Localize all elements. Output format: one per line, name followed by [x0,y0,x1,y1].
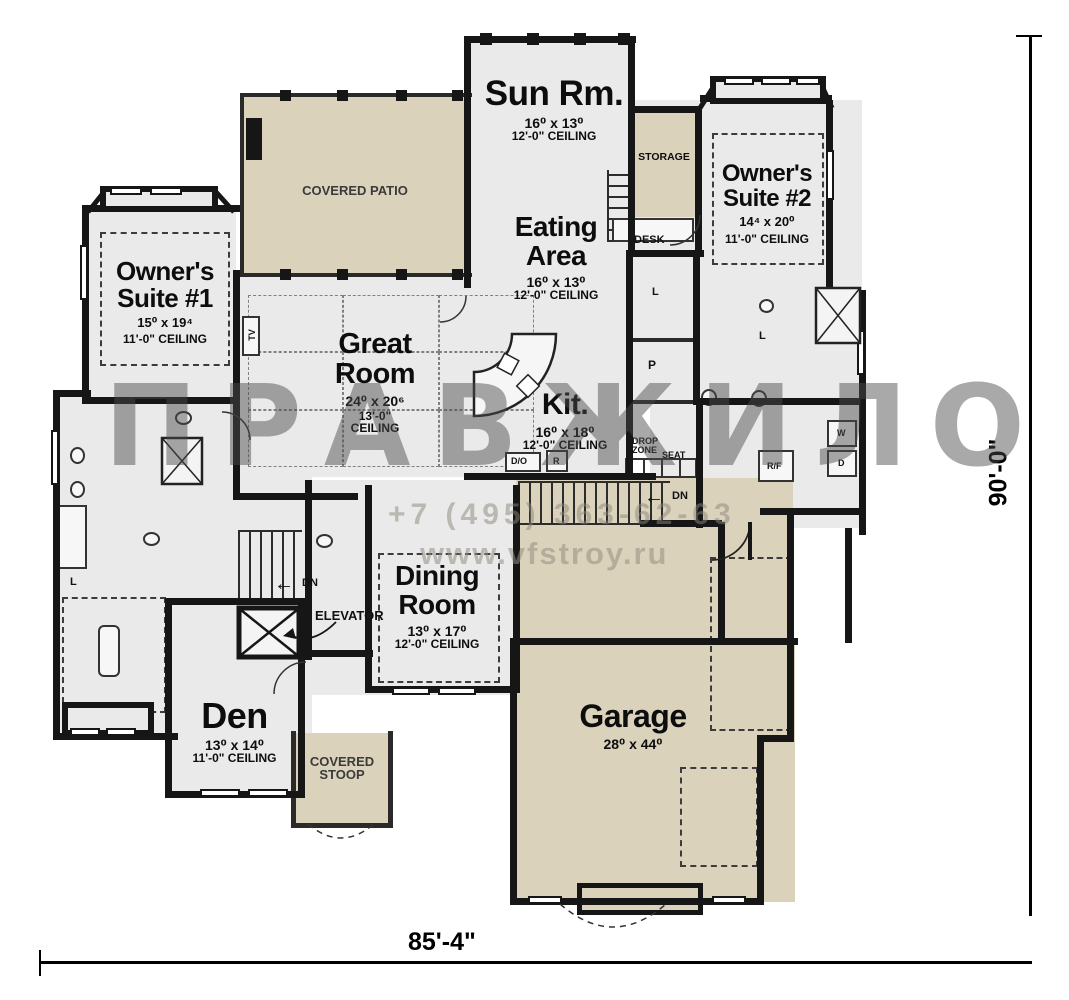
floor-plan: Sun Rm. 16⁰ x 13⁰ 12'-0" CEILING Eating … [0,0,1069,1000]
patio-fireplace [246,118,262,160]
window [80,245,88,300]
window [528,896,562,904]
room-label-eating-area: Eating Area 16⁰ x 13⁰ 12'-0" CEILING [486,213,626,301]
label-down-basement: DN [302,577,318,589]
room-label-owners-suite-1: Owner's Suite #1 15⁰ x 19⁴ 11'-0" CEILIN… [95,258,235,345]
window [150,187,182,195]
patio-column [396,269,407,280]
patio-edge [240,273,472,277]
patio-column [452,90,463,101]
width-dimension-label: 85'-4" [408,928,476,957]
column [574,33,586,45]
window [51,430,59,485]
wall [628,106,702,113]
toilet [316,534,333,548]
sink [70,447,85,464]
patio-column [280,269,291,280]
wall [233,493,358,500]
patio-column [452,269,463,280]
watermark-website: www.vfstroy.ru [420,536,668,572]
wall [845,528,852,643]
wall [165,598,305,605]
wall [628,36,635,255]
area-label-covered-patio: COVERED PATIO [300,184,410,197]
window [438,687,476,695]
window [106,728,136,736]
down-arrow-basement-stairs: ← [274,574,294,594]
patio-column [337,90,348,101]
toilet [759,299,774,313]
area-label-storage: STORAGE [626,152,702,163]
area-label-covered-stoop: COVERED STOOP [297,755,387,782]
garage-storage-outline-2 [680,767,758,867]
wall [305,650,373,657]
window [248,789,288,797]
wall [510,638,798,645]
chaise [98,625,120,677]
storage-floor [633,110,695,217]
label-linen-2: L [759,330,766,342]
label-tv: TV [247,329,257,341]
label-linen-1: L [652,286,659,298]
sink [70,481,85,498]
room-label-owners-suite-2: Owner's Suite #2 14⁴ x 20⁰ 11'-0" CEILIN… [706,162,828,245]
bottom-dimension-line [40,961,1032,964]
wall [757,735,764,905]
stoop-edge [388,731,393,827]
wall [695,106,702,256]
stoop-edge [291,823,393,828]
wall [464,36,471,288]
wall [718,522,725,642]
toilet [143,532,160,546]
patio-edge [240,93,472,97]
wall [787,510,794,742]
window [724,77,754,85]
label-elevator: ELEVATOR [315,608,384,623]
watermark-company: ПРАВЖИЛО [104,362,1047,492]
wall [510,638,517,905]
window [761,77,791,85]
window [70,728,100,736]
wall [365,485,372,693]
window [110,187,142,195]
column [618,33,630,45]
patio-edge [240,93,244,277]
patio-column [337,269,348,280]
pantry-wall [633,338,697,342]
label-desk: DESK [634,234,665,246]
wall [760,508,866,515]
wall [82,205,89,397]
room-label-den: Den 13⁰ x 14⁰ 11'-0" CEILING [162,697,307,765]
wall [305,480,312,660]
window [392,687,430,695]
column [527,33,539,45]
label-linen-3: L [70,576,77,588]
room-label-garage: Garage 28⁰ x 44⁰ [558,700,708,751]
room-label-sun-room: Sun Rm. 16⁰ x 13⁰ 12'-0" CEILING [470,76,638,143]
column [480,33,492,45]
window [200,789,240,797]
room-label-dining-room: Dining Room 13⁰ x 17⁰ 12'-0" CEILING [378,562,496,650]
patio-column [280,90,291,101]
window [796,77,820,85]
window [712,896,746,904]
patio-column [396,90,407,101]
watermark-phone: +7 (495) 363-62-63 [388,498,736,532]
